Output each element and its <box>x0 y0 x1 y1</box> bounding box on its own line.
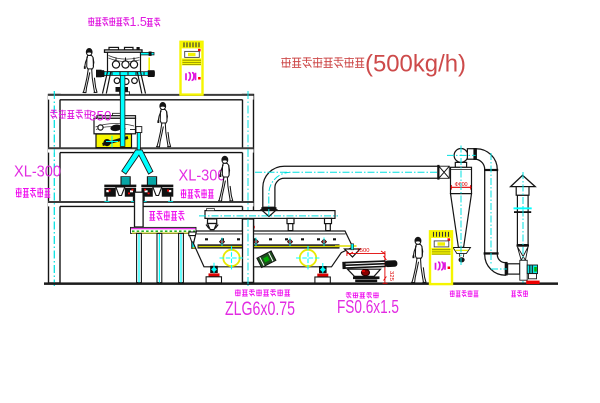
svg-text:(500kg/h): (500kg/h) <box>365 51 466 78</box>
svg-text:FS0.6x1.5: FS0.6x1.5 <box>337 297 399 317</box>
svg-text:350: 350 <box>89 109 112 124</box>
svg-text:1500: 1500 <box>357 248 370 254</box>
svg-text:XL-300: XL-300 <box>14 164 61 181</box>
svg-text:XL-300: XL-300 <box>179 168 226 185</box>
svg-text:1.5: 1.5 <box>130 15 147 29</box>
svg-text:325: 325 <box>388 271 394 281</box>
svg-text:ZLG6x0.75: ZLG6x0.75 <box>225 299 295 320</box>
